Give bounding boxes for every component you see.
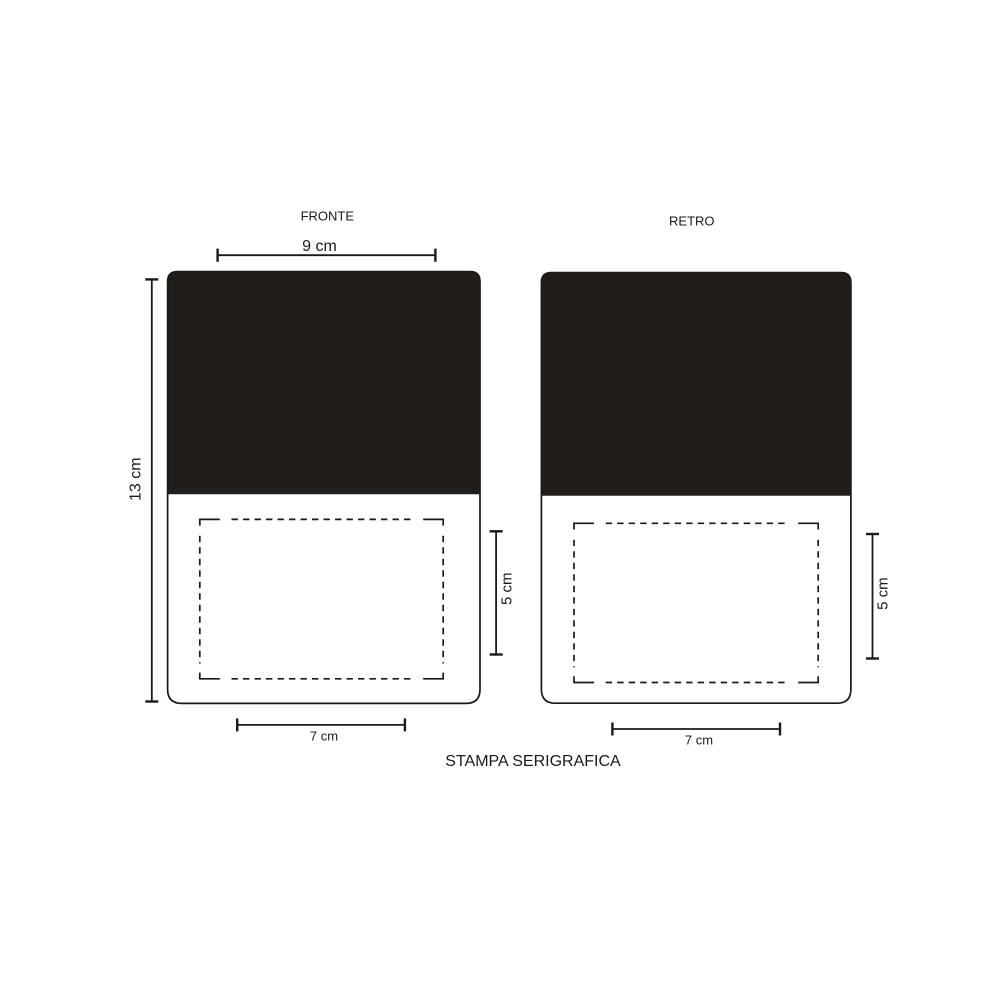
svg-text:RETRO: RETRO: [669, 213, 715, 228]
svg-text:13 cm: 13 cm: [127, 457, 144, 501]
svg-text:7 cm: 7 cm: [310, 729, 338, 744]
svg-text:5 cm: 5 cm: [874, 577, 891, 610]
svg-text:7 cm: 7 cm: [685, 733, 713, 748]
svg-text:FRONTE: FRONTE: [301, 209, 355, 224]
svg-text:STAMPA SERIGRAFICA: STAMPA SERIGRAFICA: [445, 753, 621, 770]
svg-text:9 cm: 9 cm: [302, 238, 337, 255]
svg-text:5 cm: 5 cm: [499, 572, 516, 605]
